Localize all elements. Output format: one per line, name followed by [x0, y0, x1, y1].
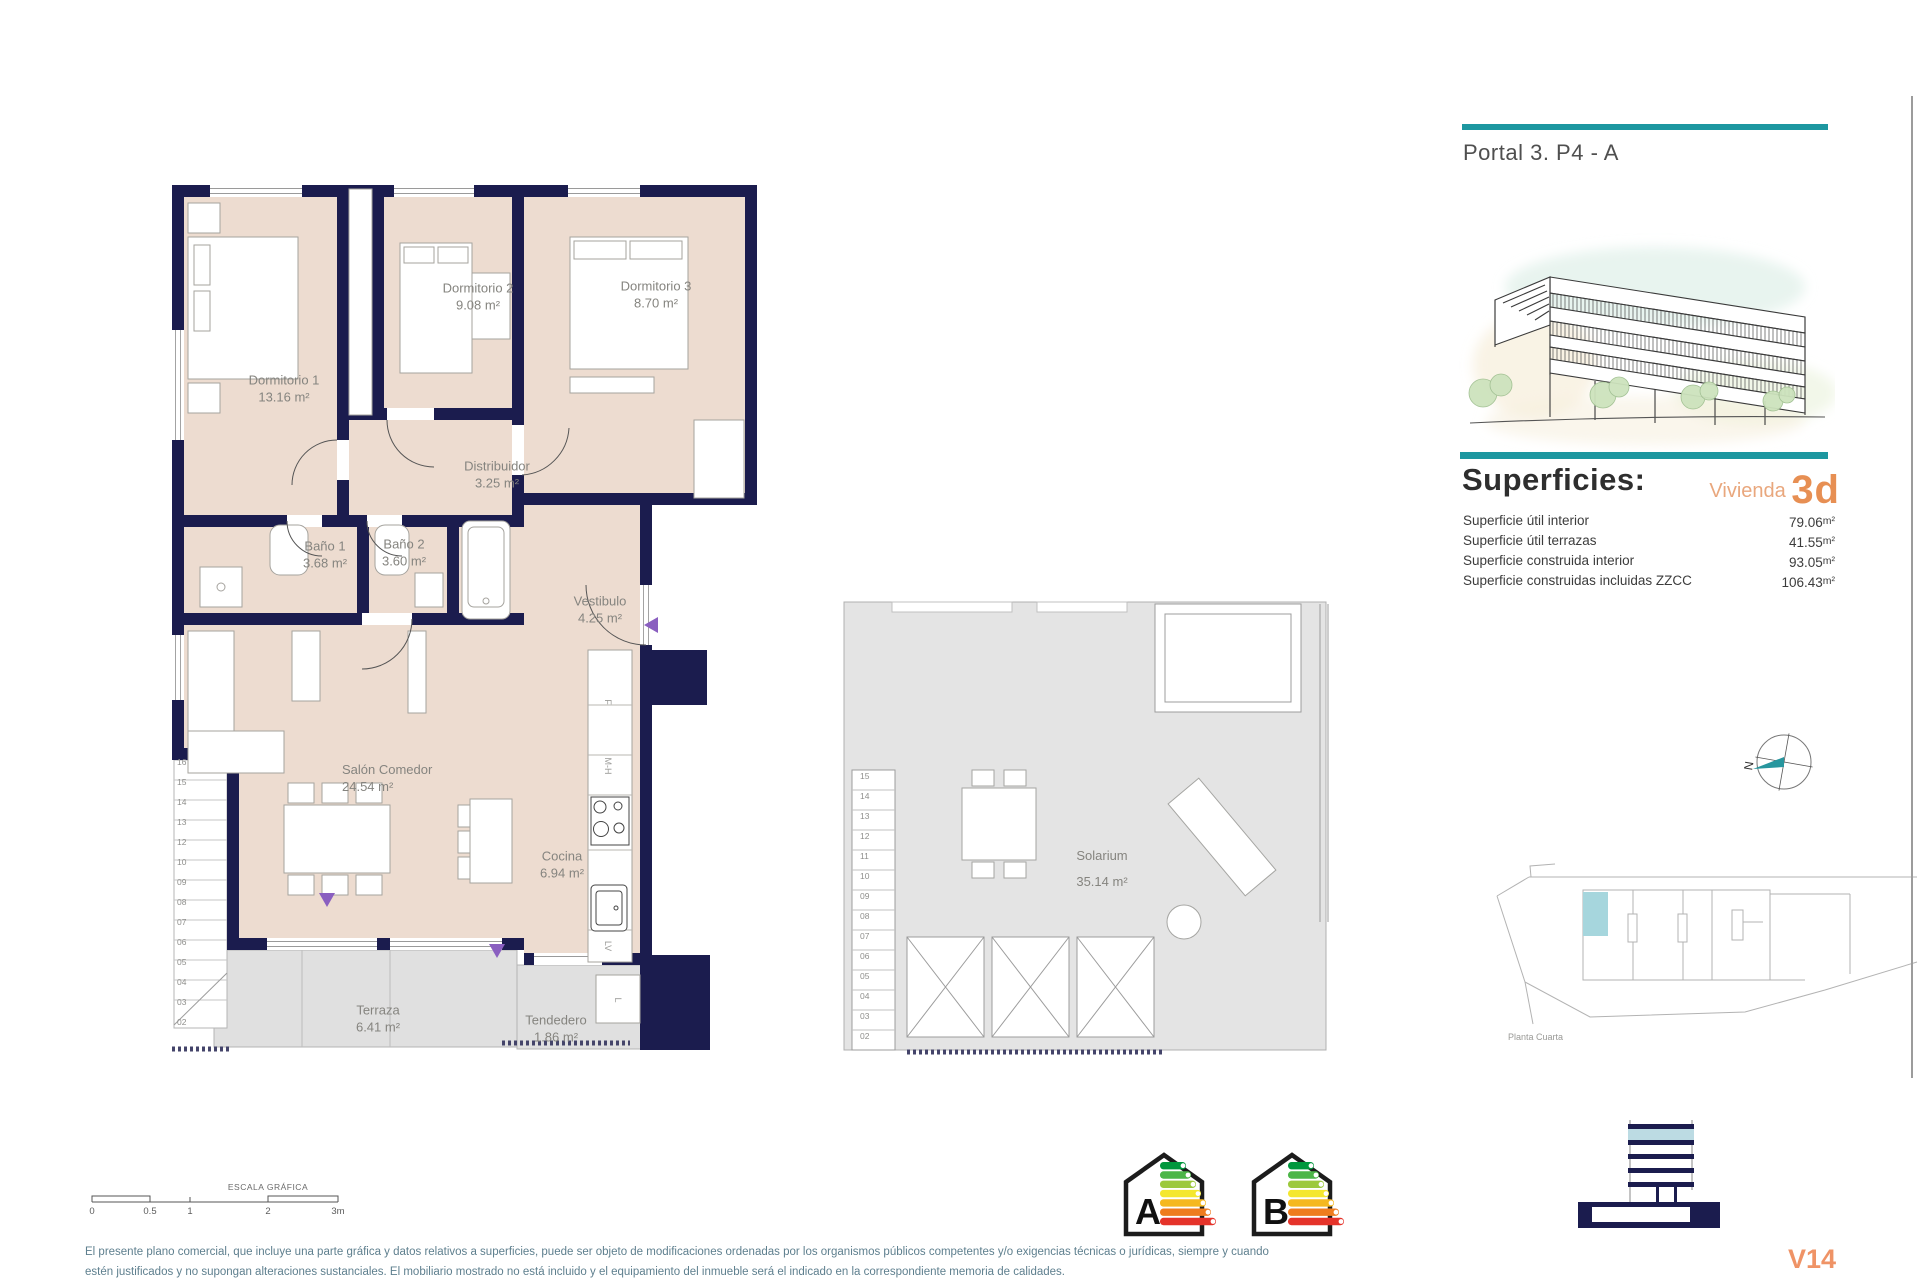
superficies-heading: Superficies: — [1462, 462, 1645, 498]
energy-letter-b: B — [1263, 1191, 1289, 1232]
solarium-stair-numbers: 15 14 13 12 11 10 09 08 07 06 05 04 03 0… — [860, 766, 869, 1046]
scale-bar — [88, 1190, 343, 1206]
room-label-cocina: Cocina6.94 m² — [540, 831, 584, 882]
portal-title: Portal 3. P4 - A — [1463, 140, 1619, 166]
scale-tick-3m: 3m — [331, 1206, 344, 1217]
appliance-label-washer: L — [613, 997, 623, 1002]
room-label-tendedero: Tendedero1.86 m² — [525, 995, 586, 1046]
stair-numbers-lower: 10 09 08 07 06 05 04 03 02 — [177, 852, 186, 1032]
plan-sheet: Portal 3. P4 - A — [0, 0, 1920, 1280]
table-row: Superficie útil terrazas 41.55m² — [1463, 532, 1835, 552]
appliance-label-oven: M-H — [603, 758, 613, 775]
room-label-solarium: Solarium35.14 m² — [1076, 817, 1127, 895]
energy-house-b-icon: B — [1254, 1155, 1344, 1234]
room-label-dormitorio1: Dormitorio 113.16 m² — [249, 355, 320, 406]
building-sketch — [1455, 225, 1835, 450]
scale-tick-0: 0 — [89, 1206, 94, 1217]
floor-plan — [172, 185, 762, 1065]
disclaimer-line-2: estén justificados y no supongan alterac… — [85, 1266, 1065, 1278]
table-row: Superficie útil interior 79.06m² — [1463, 512, 1835, 532]
table-row: Superficie construida interior 93.05m² — [1463, 552, 1835, 572]
superficies-rule — [1460, 452, 1828, 459]
room-label-vestibulo: Vestibulo4.25 m² — [574, 576, 627, 627]
building-section — [1570, 1112, 1735, 1237]
version-tag: V14 — [1788, 1244, 1836, 1275]
energy-letter-a: A — [1135, 1191, 1161, 1232]
energy-ratings: A B — [1118, 1148, 1368, 1252]
stair-numbers-upper: 16 15 14 13 12 — [177, 752, 186, 852]
room-label-dormitorio2: Dormitorio 29.08 m² — [443, 263, 514, 314]
room-label-salon: Salón Comedor24.54 m² — [342, 744, 432, 795]
highlighted-floor — [1628, 1129, 1694, 1140]
vivienda-tag: Vivienda 3d — [1640, 468, 1840, 513]
room-label-bano2: Baño 23.60 m² — [382, 519, 426, 570]
room-label-terraza: Terraza6.41 m² — [356, 985, 400, 1036]
row-value: 106.43m² — [1781, 572, 1835, 592]
row-value: 41.55m² — [1789, 532, 1835, 552]
page-border — [1911, 96, 1913, 1078]
energy-house-a-icon: A — [1126, 1155, 1216, 1234]
site-plan-caption: Planta Cuarta — [1508, 1032, 1563, 1042]
appliance-label-fridge: F — [603, 699, 613, 705]
row-label: Superficie útil terrazas — [1463, 532, 1597, 552]
vivienda-value: 3d — [1791, 468, 1840, 512]
compass-north-label: N — [1741, 760, 1756, 771]
scale-tick-05: 0.5 — [143, 1206, 156, 1217]
room-label-dormitorio3: Dormitorio 38.70 m² — [621, 261, 692, 312]
row-value: 93.05m² — [1789, 552, 1835, 572]
disclaimer-line-1: El presente plano comercial, que incluye… — [85, 1246, 1269, 1258]
superficies-table: Superficie útil interior 79.06m² Superfi… — [1463, 512, 1835, 592]
scale-tick-1: 1 — [187, 1206, 192, 1217]
compass-icon: N — [1738, 722, 1823, 807]
room-label-distribuidor: Distribuidor3.25 m² — [464, 441, 530, 492]
row-label: Superficie útil interior — [1463, 512, 1589, 532]
row-label: Superficie construidas incluidas ZZCC — [1463, 572, 1692, 592]
appliance-label-dishwasher: LV — [603, 941, 613, 951]
room-label-bano1: Baño 13.68 m² — [303, 521, 347, 572]
table-row: Superficie construidas incluidas ZZCC 10… — [1463, 572, 1835, 592]
vivienda-label: Vivienda — [1709, 480, 1785, 502]
highlighted-unit — [1583, 892, 1608, 936]
scale-tick-2: 2 — [265, 1206, 270, 1217]
header-rule — [1462, 124, 1828, 130]
row-value: 79.06m² — [1789, 512, 1835, 532]
row-label: Superficie construida interior — [1463, 552, 1634, 572]
